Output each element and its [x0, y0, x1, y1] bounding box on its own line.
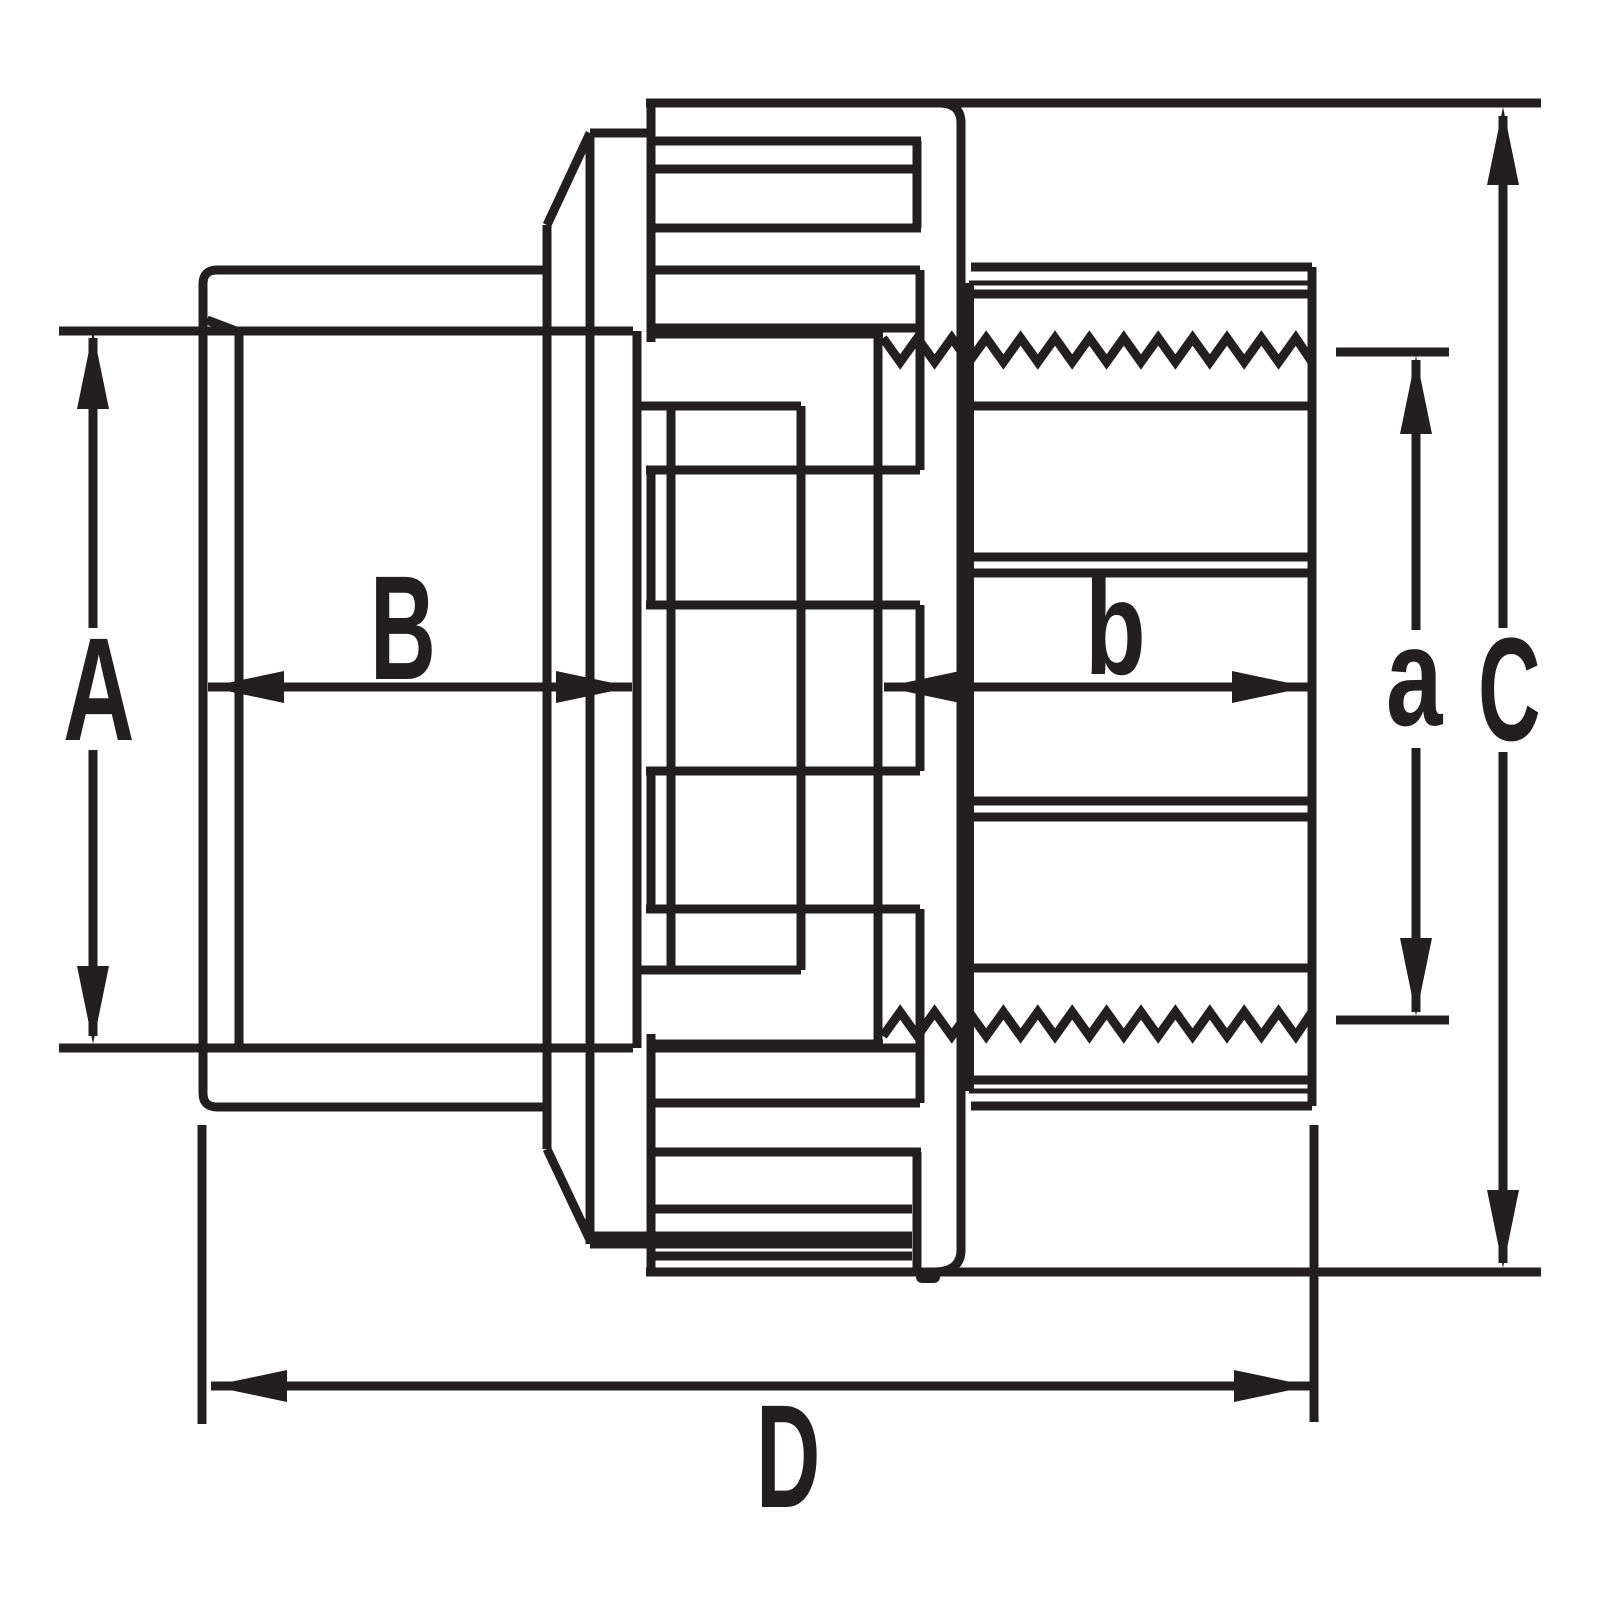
- svg-text:b: b: [1085, 553, 1146, 703]
- svg-text:C: C: [1478, 607, 1541, 771]
- svg-text:B: B: [370, 545, 436, 711]
- svg-text:D: D: [756, 1374, 820, 1538]
- svg-text:A: A: [63, 607, 135, 771]
- svg-text:a: a: [1386, 599, 1444, 756]
